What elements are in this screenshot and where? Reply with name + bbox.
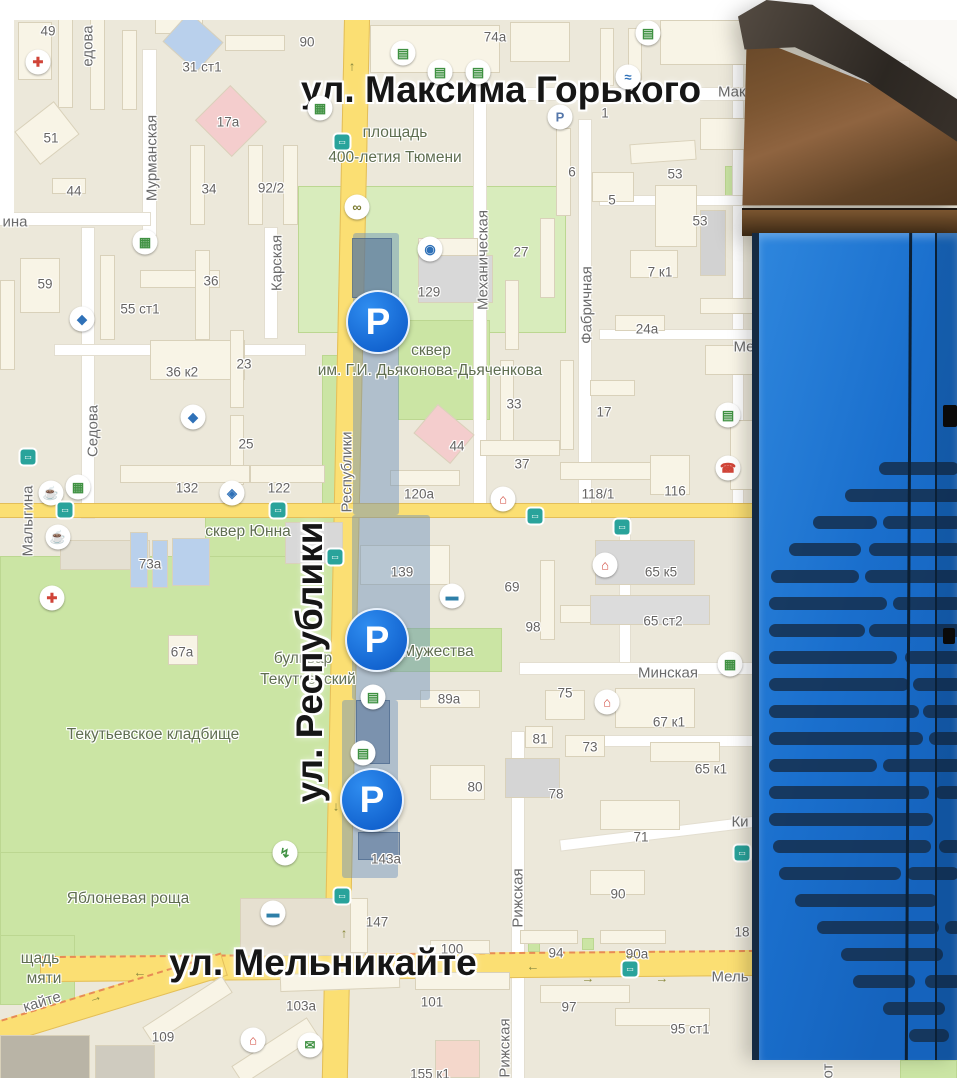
map-canvas[interactable]: 499074а31 ст1117а51443492/2653553277 к12… (0, 0, 957, 1085)
frame-top-right-fade (840, 20, 957, 170)
frame-left (0, 20, 14, 216)
parking-marker-layer: PPP (0, 0, 957, 1085)
parking-marker[interactable]: P (340, 768, 404, 832)
parking-marker[interactable]: P (345, 608, 409, 672)
parking-marker[interactable]: P (346, 290, 410, 354)
frame-top (0, 0, 957, 20)
promo-image: 499074а31 ст1117а51443492/2653553277 к12… (0, 0, 957, 1085)
frame-bottom (0, 1078, 957, 1085)
